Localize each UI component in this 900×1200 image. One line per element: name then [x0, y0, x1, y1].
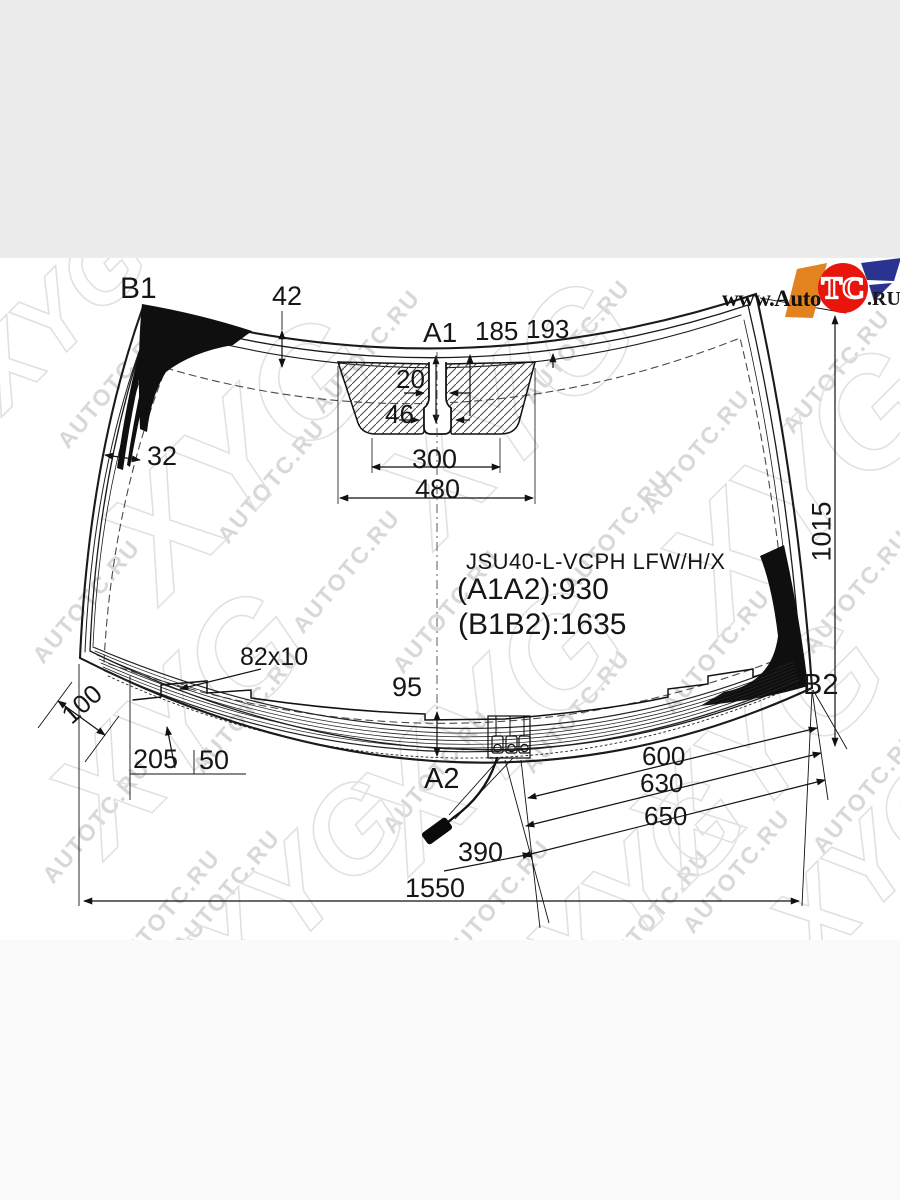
dim-frit-left: 32 [147, 443, 177, 470]
point-label-b2: B2 [803, 671, 838, 700]
logo-tc-badge: TC [816, 270, 870, 306]
dim-center-to-edge: 95 [392, 674, 422, 701]
dim-bracket-inner: 300 [412, 446, 457, 473]
part-code: JSU40-L-VCPH LFW/H/X [466, 551, 725, 573]
dim-offset-b: 193 [526, 316, 569, 342]
point-label-a1: A1 [423, 319, 457, 347]
dim-sensor-window: 46 [385, 401, 414, 427]
dim-heater-notch: 82x10 [240, 645, 308, 670]
logo-text-suffix: .RU [867, 288, 900, 311]
part-a1a2-height: (A1A2):930 [457, 575, 609, 605]
dim-connector-c: 650 [644, 803, 687, 829]
dim-heater-offset-b: 50 [199, 747, 229, 774]
dim-wire-length: 390 [458, 839, 503, 866]
dim-glass-height: 1015 [809, 501, 836, 561]
screenshot-root: { "page": { "background_top": "#ececec",… [0, 0, 900, 1200]
dim-frit-top: 42 [272, 283, 302, 310]
dim-mirror-slot: 20 [396, 366, 425, 392]
autotc-logo: www.Auto TC .RU [722, 258, 900, 342]
dim-bottom-width: 1550 [405, 875, 465, 902]
part-b1b2-diagonal: (B1B2):1635 [458, 610, 626, 640]
dim-offset-a: 185 [475, 318, 518, 344]
point-label-b1: B1 [120, 274, 157, 304]
logo-text-prefix: www.Auto [722, 286, 818, 312]
dim-connector-a: 600 [642, 743, 685, 769]
dim-heater-offset-a: 205 [133, 746, 178, 773]
dim-connector-b: 630 [640, 770, 683, 796]
point-label-a2: A2 [424, 765, 459, 794]
dim-bracket-outer: 480 [415, 476, 460, 503]
windshield-line-drawing [0, 0, 900, 1200]
